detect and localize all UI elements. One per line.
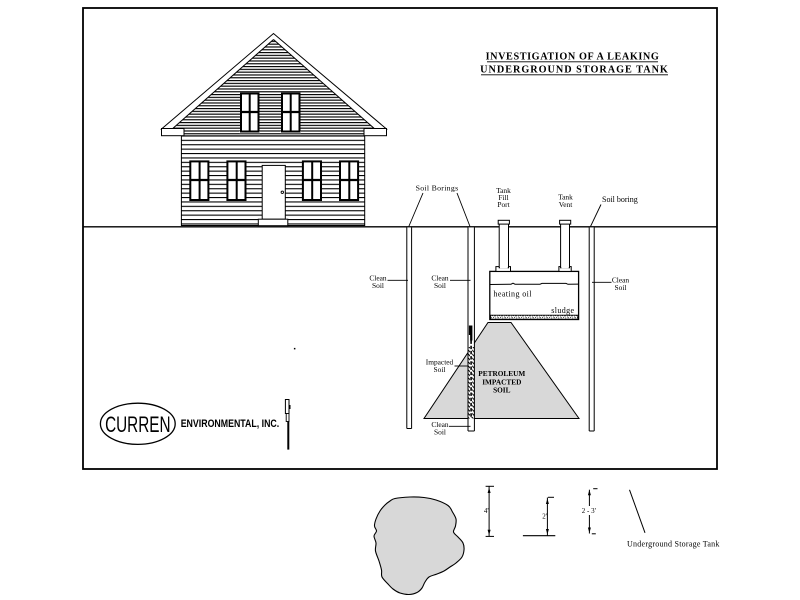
svg-text:2 - 3': 2 - 3' bbox=[582, 507, 596, 515]
svg-text:4': 4' bbox=[484, 507, 489, 515]
svg-text:heating oil: heating oil bbox=[494, 290, 533, 299]
svg-text:Soil: Soil bbox=[434, 281, 446, 290]
svg-text:Underground Storage Tank: Underground Storage Tank bbox=[627, 540, 720, 549]
svg-text:Soil: Soil bbox=[615, 283, 627, 292]
svg-text:sludge: sludge bbox=[551, 306, 574, 315]
svg-text:Soil Borings: Soil Borings bbox=[416, 184, 459, 193]
svg-text:Soil: Soil bbox=[434, 428, 446, 437]
svg-text:Soil: Soil bbox=[372, 281, 384, 290]
svg-text:Vent: Vent bbox=[559, 200, 573, 209]
svg-text:INVESTIGATION OF A LEAKING: INVESTIGATION OF A LEAKING bbox=[486, 52, 660, 63]
svg-text:UNDERGROUND STORAGE TANK: UNDERGROUND STORAGE TANK bbox=[480, 65, 669, 76]
svg-text:Soil: Soil bbox=[434, 365, 446, 374]
svg-text:2': 2' bbox=[542, 512, 547, 520]
svg-text:Soil boring: Soil boring bbox=[602, 195, 638, 204]
svg-text:SOIL: SOIL bbox=[493, 386, 511, 395]
svg-text:Port: Port bbox=[497, 200, 510, 209]
svg-text:CURREN: CURREN bbox=[105, 413, 170, 438]
svg-text:ENVIRONMENTAL, INC.: ENVIRONMENTAL, INC. bbox=[181, 418, 280, 430]
